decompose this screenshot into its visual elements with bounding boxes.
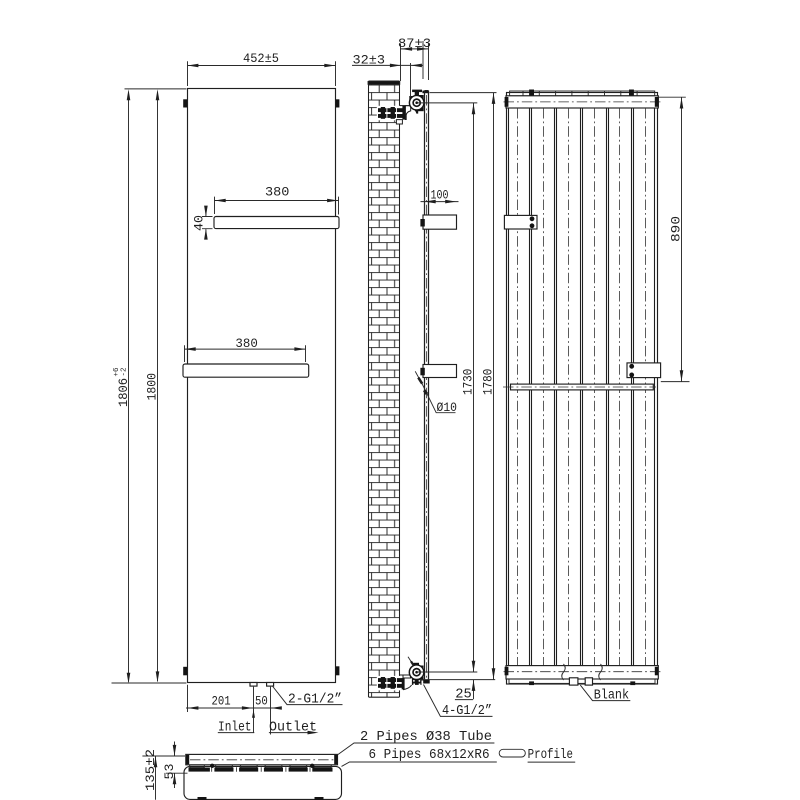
svg-text:Blank: Blank <box>594 687 629 703</box>
svg-text:1780: 1780 <box>481 369 496 395</box>
svg-text:380: 380 <box>235 336 257 351</box>
svg-text:Profile: Profile <box>528 747 573 763</box>
svg-text:4-G1/2”: 4-G1/2” <box>442 704 492 719</box>
svg-text:6 Pipes 68x12xR6: 6 Pipes 68x12xR6 <box>369 747 490 763</box>
svg-text:Inlet: Inlet <box>218 720 252 736</box>
svg-text:2-G1/2”: 2-G1/2” <box>288 692 342 707</box>
svg-text:32±3: 32±3 <box>353 52 386 67</box>
svg-text:-2: -2 <box>121 367 129 376</box>
svg-text:1806: 1806 <box>116 378 131 407</box>
svg-text:890: 890 <box>669 216 684 242</box>
svg-text:1730: 1730 <box>461 369 476 395</box>
svg-text:1800: 1800 <box>144 373 159 401</box>
svg-text:40: 40 <box>191 215 206 231</box>
svg-text:Ø10: Ø10 <box>437 400 458 415</box>
svg-text:53: 53 <box>162 763 177 779</box>
svg-text:25: 25 <box>455 688 472 703</box>
svg-text:380: 380 <box>265 185 289 200</box>
svg-text:201: 201 <box>212 694 231 709</box>
svg-text:87±3: 87±3 <box>398 36 431 51</box>
svg-text:135±2: 135±2 <box>143 749 158 791</box>
svg-text:452±5: 452±5 <box>243 51 279 66</box>
svg-text:Outlet: Outlet <box>269 720 317 736</box>
svg-text:2 Pipes Ø38 Tube: 2 Pipes Ø38 Tube <box>360 729 492 745</box>
svg-text:50: 50 <box>255 694 268 709</box>
svg-text:100: 100 <box>431 187 449 202</box>
